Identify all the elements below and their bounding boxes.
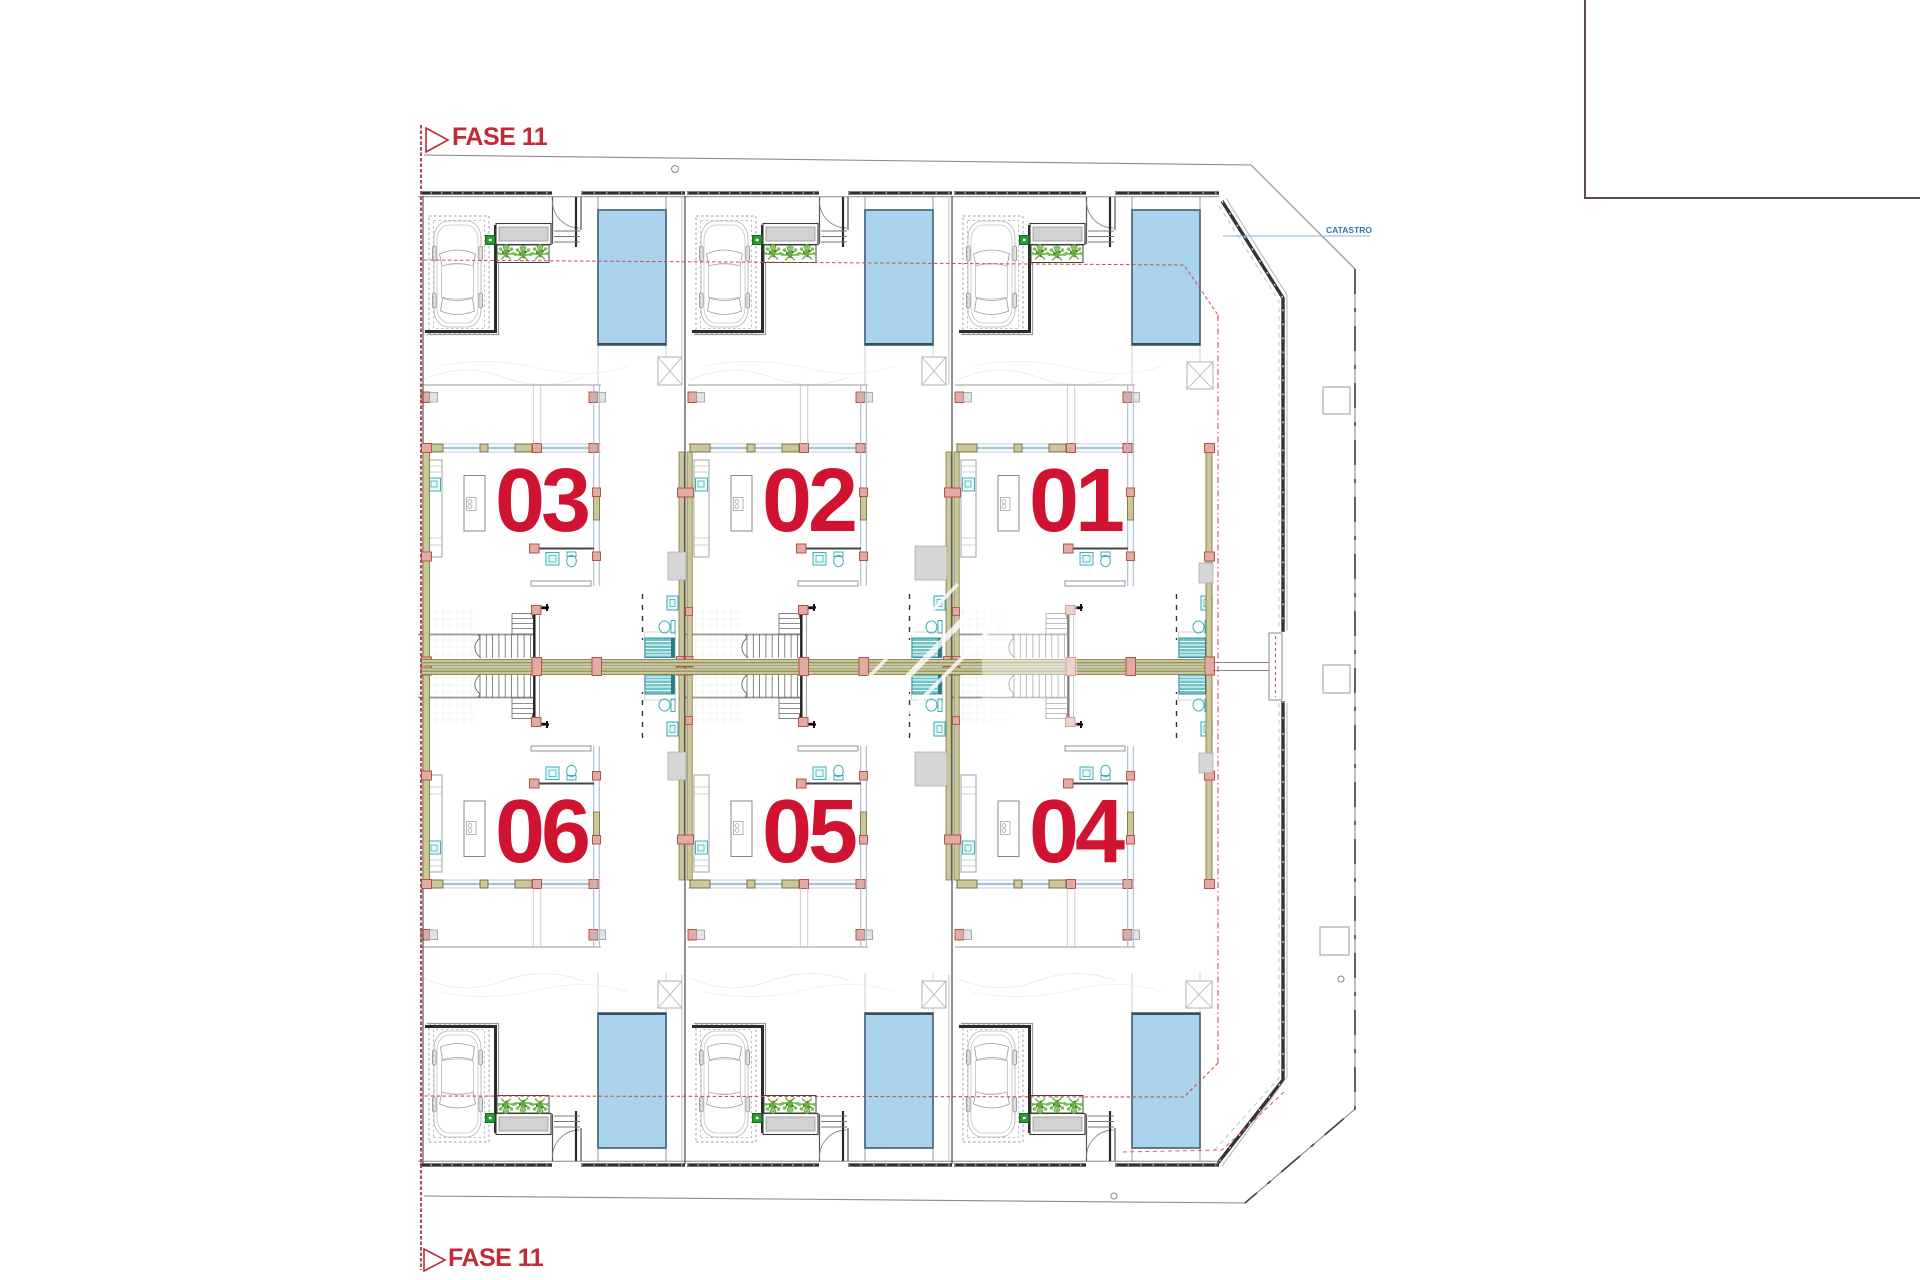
svg-text:FASE 11: FASE 11	[452, 123, 548, 151]
svg-text:06: 06	[495, 782, 588, 882]
svg-text:03: 03	[495, 451, 588, 551]
svg-text:02: 02	[762, 451, 855, 551]
svg-text:CATASTRO: CATASTRO	[1326, 225, 1372, 235]
svg-text:FASE 11: FASE 11	[448, 1244, 544, 1272]
svg-text:05: 05	[762, 782, 856, 882]
svg-text:04: 04	[1029, 782, 1125, 882]
svg-text:01: 01	[1029, 451, 1123, 551]
